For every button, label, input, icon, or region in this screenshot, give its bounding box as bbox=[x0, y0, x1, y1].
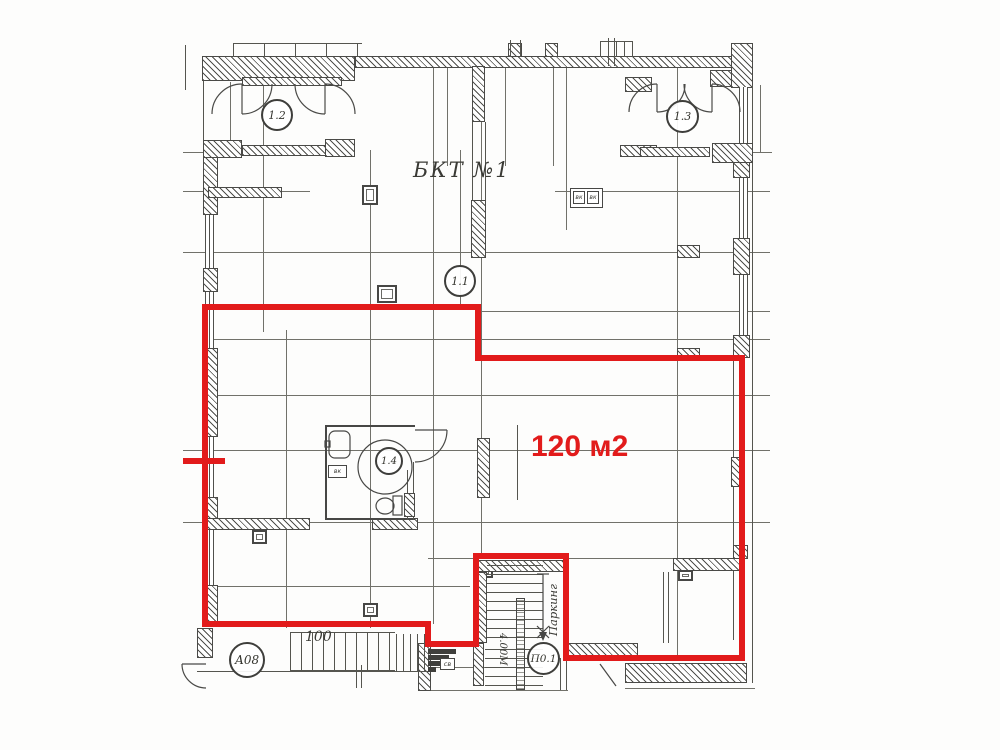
room-tag-1-4: 1.4 bbox=[375, 447, 403, 475]
parapet-ticks bbox=[233, 43, 362, 57]
wall-face bbox=[733, 358, 734, 640]
wall-left bbox=[203, 585, 218, 624]
pier bbox=[677, 348, 700, 359]
wall-left bbox=[203, 348, 218, 437]
stair-treads bbox=[396, 634, 429, 672]
wall-joint bbox=[510, 40, 511, 57]
interior-wall bbox=[208, 187, 282, 198]
wall-face bbox=[203, 81, 204, 141]
wall-joint bbox=[520, 40, 521, 57]
axis-line bbox=[205, 339, 770, 340]
axis-line bbox=[566, 66, 567, 230]
wall-face bbox=[361, 665, 362, 688]
pier bbox=[677, 245, 700, 258]
wall-face bbox=[356, 665, 357, 688]
window bbox=[739, 87, 748, 147]
mark-tag-label: А08 bbox=[235, 653, 259, 667]
stair-wall-left bbox=[473, 643, 484, 686]
pier bbox=[477, 438, 490, 498]
door-arc bbox=[212, 84, 242, 114]
stair-stringer bbox=[516, 598, 525, 690]
dim-100-label: 100 bbox=[305, 629, 332, 645]
shaft-label: вк bbox=[573, 191, 585, 204]
wall-right bbox=[733, 238, 750, 275]
vestibule-wall bbox=[640, 147, 710, 157]
column bbox=[363, 603, 378, 617]
door-arc bbox=[415, 430, 447, 462]
sv-label: св bbox=[440, 658, 455, 670]
room-tag-label: 1.3 bbox=[674, 110, 692, 123]
vestibule-wall bbox=[242, 145, 335, 156]
vestibule-wall bbox=[712, 143, 753, 163]
wall-face bbox=[517, 425, 518, 500]
wall-joint bbox=[614, 38, 615, 66]
axis-line bbox=[447, 66, 448, 166]
wall-joint bbox=[608, 38, 609, 66]
wall-left-below bbox=[197, 628, 213, 658]
axis-line bbox=[430, 690, 568, 691]
door-arc bbox=[325, 84, 355, 114]
vestibule-wall bbox=[625, 77, 652, 92]
shaft-label: вк bbox=[587, 191, 599, 204]
window bbox=[205, 437, 214, 497]
wall-pier bbox=[733, 545, 748, 559]
vestibule-wall bbox=[710, 70, 732, 87]
axis-line bbox=[750, 152, 772, 153]
mark-tag-a08: А08 bbox=[229, 642, 265, 678]
wall-face bbox=[566, 658, 567, 690]
wall-bottom bbox=[625, 663, 747, 683]
window bbox=[205, 215, 214, 268]
parking-label: Паркинг bbox=[546, 562, 560, 636]
parapet-ticks bbox=[600, 41, 633, 57]
vestibule-wall bbox=[203, 140, 242, 158]
bathroom-pier bbox=[404, 493, 415, 517]
axis-line bbox=[183, 152, 205, 153]
window bbox=[739, 275, 748, 335]
axis-line bbox=[760, 85, 761, 152]
axis-line bbox=[505, 56, 506, 166]
floor-plan: вк вк вк св bbox=[0, 0, 1000, 750]
column bbox=[362, 185, 378, 205]
wall-edge bbox=[185, 45, 186, 90]
pier bbox=[471, 200, 486, 258]
stair-section-steps bbox=[428, 649, 456, 654]
axis-line bbox=[286, 330, 287, 628]
wall-right bbox=[733, 335, 750, 358]
vestibule-wall bbox=[325, 139, 355, 157]
wall-top-subband bbox=[242, 77, 342, 86]
wall-top-right bbox=[355, 56, 745, 68]
bathroom-shaft-label: вк bbox=[328, 465, 347, 478]
axis-line bbox=[205, 586, 470, 587]
stair-wall-left bbox=[475, 572, 487, 643]
mark-tag-p01: П0.1 bbox=[527, 642, 560, 675]
pier bbox=[472, 66, 485, 122]
mark-tag-label: П0.1 bbox=[531, 653, 557, 665]
room-tag-label: 1.2 bbox=[268, 109, 286, 122]
axis-line bbox=[205, 395, 770, 396]
building-label: БКТ №1 bbox=[413, 158, 511, 182]
wall-left bbox=[203, 497, 218, 520]
wall-face bbox=[752, 85, 753, 683]
column bbox=[252, 530, 267, 544]
stair-treads bbox=[487, 565, 543, 645]
column bbox=[377, 285, 397, 303]
room-tag-label: 1.1 bbox=[451, 275, 469, 288]
stair-dim-label: 4.00М bbox=[497, 633, 508, 685]
wall-pier-above bbox=[545, 43, 558, 57]
window bbox=[739, 178, 748, 238]
leader-line bbox=[600, 664, 616, 686]
wall-corner-ne bbox=[731, 43, 753, 88]
axis-line bbox=[625, 688, 755, 689]
door-arc bbox=[712, 84, 740, 112]
axis-line bbox=[370, 150, 371, 628]
interior-wall bbox=[568, 643, 638, 658]
room-tag-label: 1.4 bbox=[381, 456, 397, 467]
column bbox=[678, 570, 693, 581]
axis-line bbox=[478, 311, 770, 312]
wall-face bbox=[663, 572, 664, 643]
door-arc bbox=[182, 664, 206, 688]
stair-section-steps bbox=[428, 667, 436, 672]
window bbox=[205, 292, 214, 348]
room-tag-1-1: 1.1 bbox=[444, 265, 476, 297]
interior-wall bbox=[202, 518, 310, 530]
wall-pier bbox=[731, 457, 741, 487]
axis-line bbox=[433, 66, 434, 624]
room-tag-1-2: 1.2 bbox=[261, 99, 293, 131]
axis-line bbox=[553, 56, 554, 166]
room-tag-1-3: 1.3 bbox=[666, 100, 699, 133]
wall-face bbox=[668, 572, 669, 643]
wall-left bbox=[203, 268, 218, 292]
door-arc bbox=[295, 84, 325, 114]
wall-face bbox=[560, 658, 561, 690]
area-label: 120 м2 bbox=[531, 430, 628, 464]
